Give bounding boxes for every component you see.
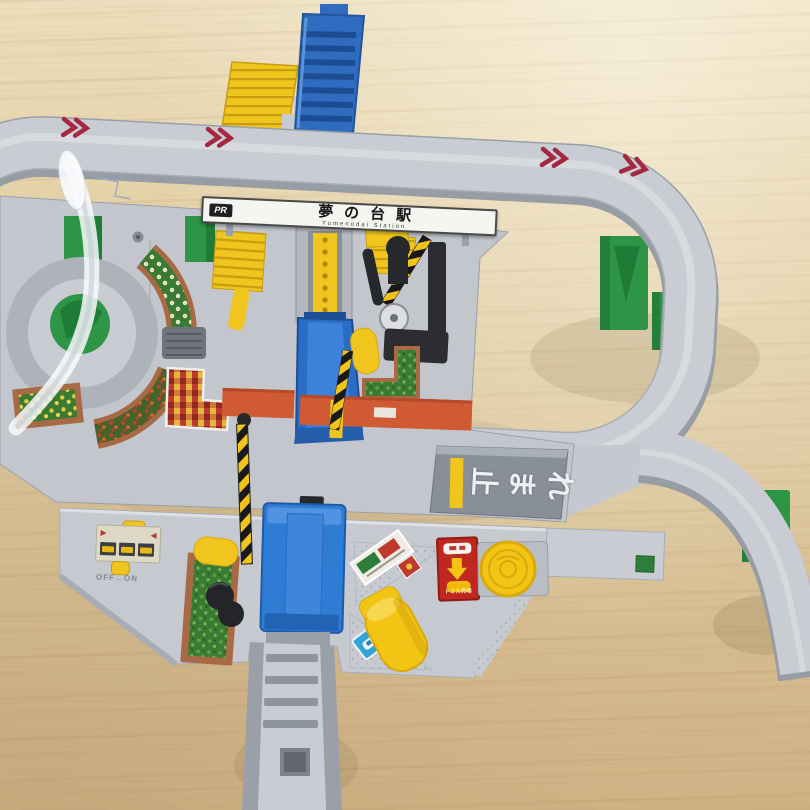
- playset-illustration: [0, 0, 810, 810]
- elevator-lift-channel: [296, 226, 352, 324]
- blue-lift-box: [260, 495, 346, 633]
- plarail-playset-photo: PR 夢の台駅 Yumenodai Station 止 ま れ OFF←ON ト…: [0, 0, 810, 810]
- stop-sign-text: 止 ま れ: [466, 449, 569, 516]
- stop-char-2: ま: [505, 468, 535, 498]
- stop-char-1: 止: [467, 466, 497, 496]
- bottom-track-ramp: [242, 642, 342, 810]
- tomica-sticker-caption: トミカ売場: [437, 586, 479, 595]
- coin-button: [478, 541, 549, 596]
- plarail-logo: PR: [209, 203, 232, 217]
- stop-char-3: れ: [543, 470, 573, 500]
- bus-icons: [100, 542, 154, 557]
